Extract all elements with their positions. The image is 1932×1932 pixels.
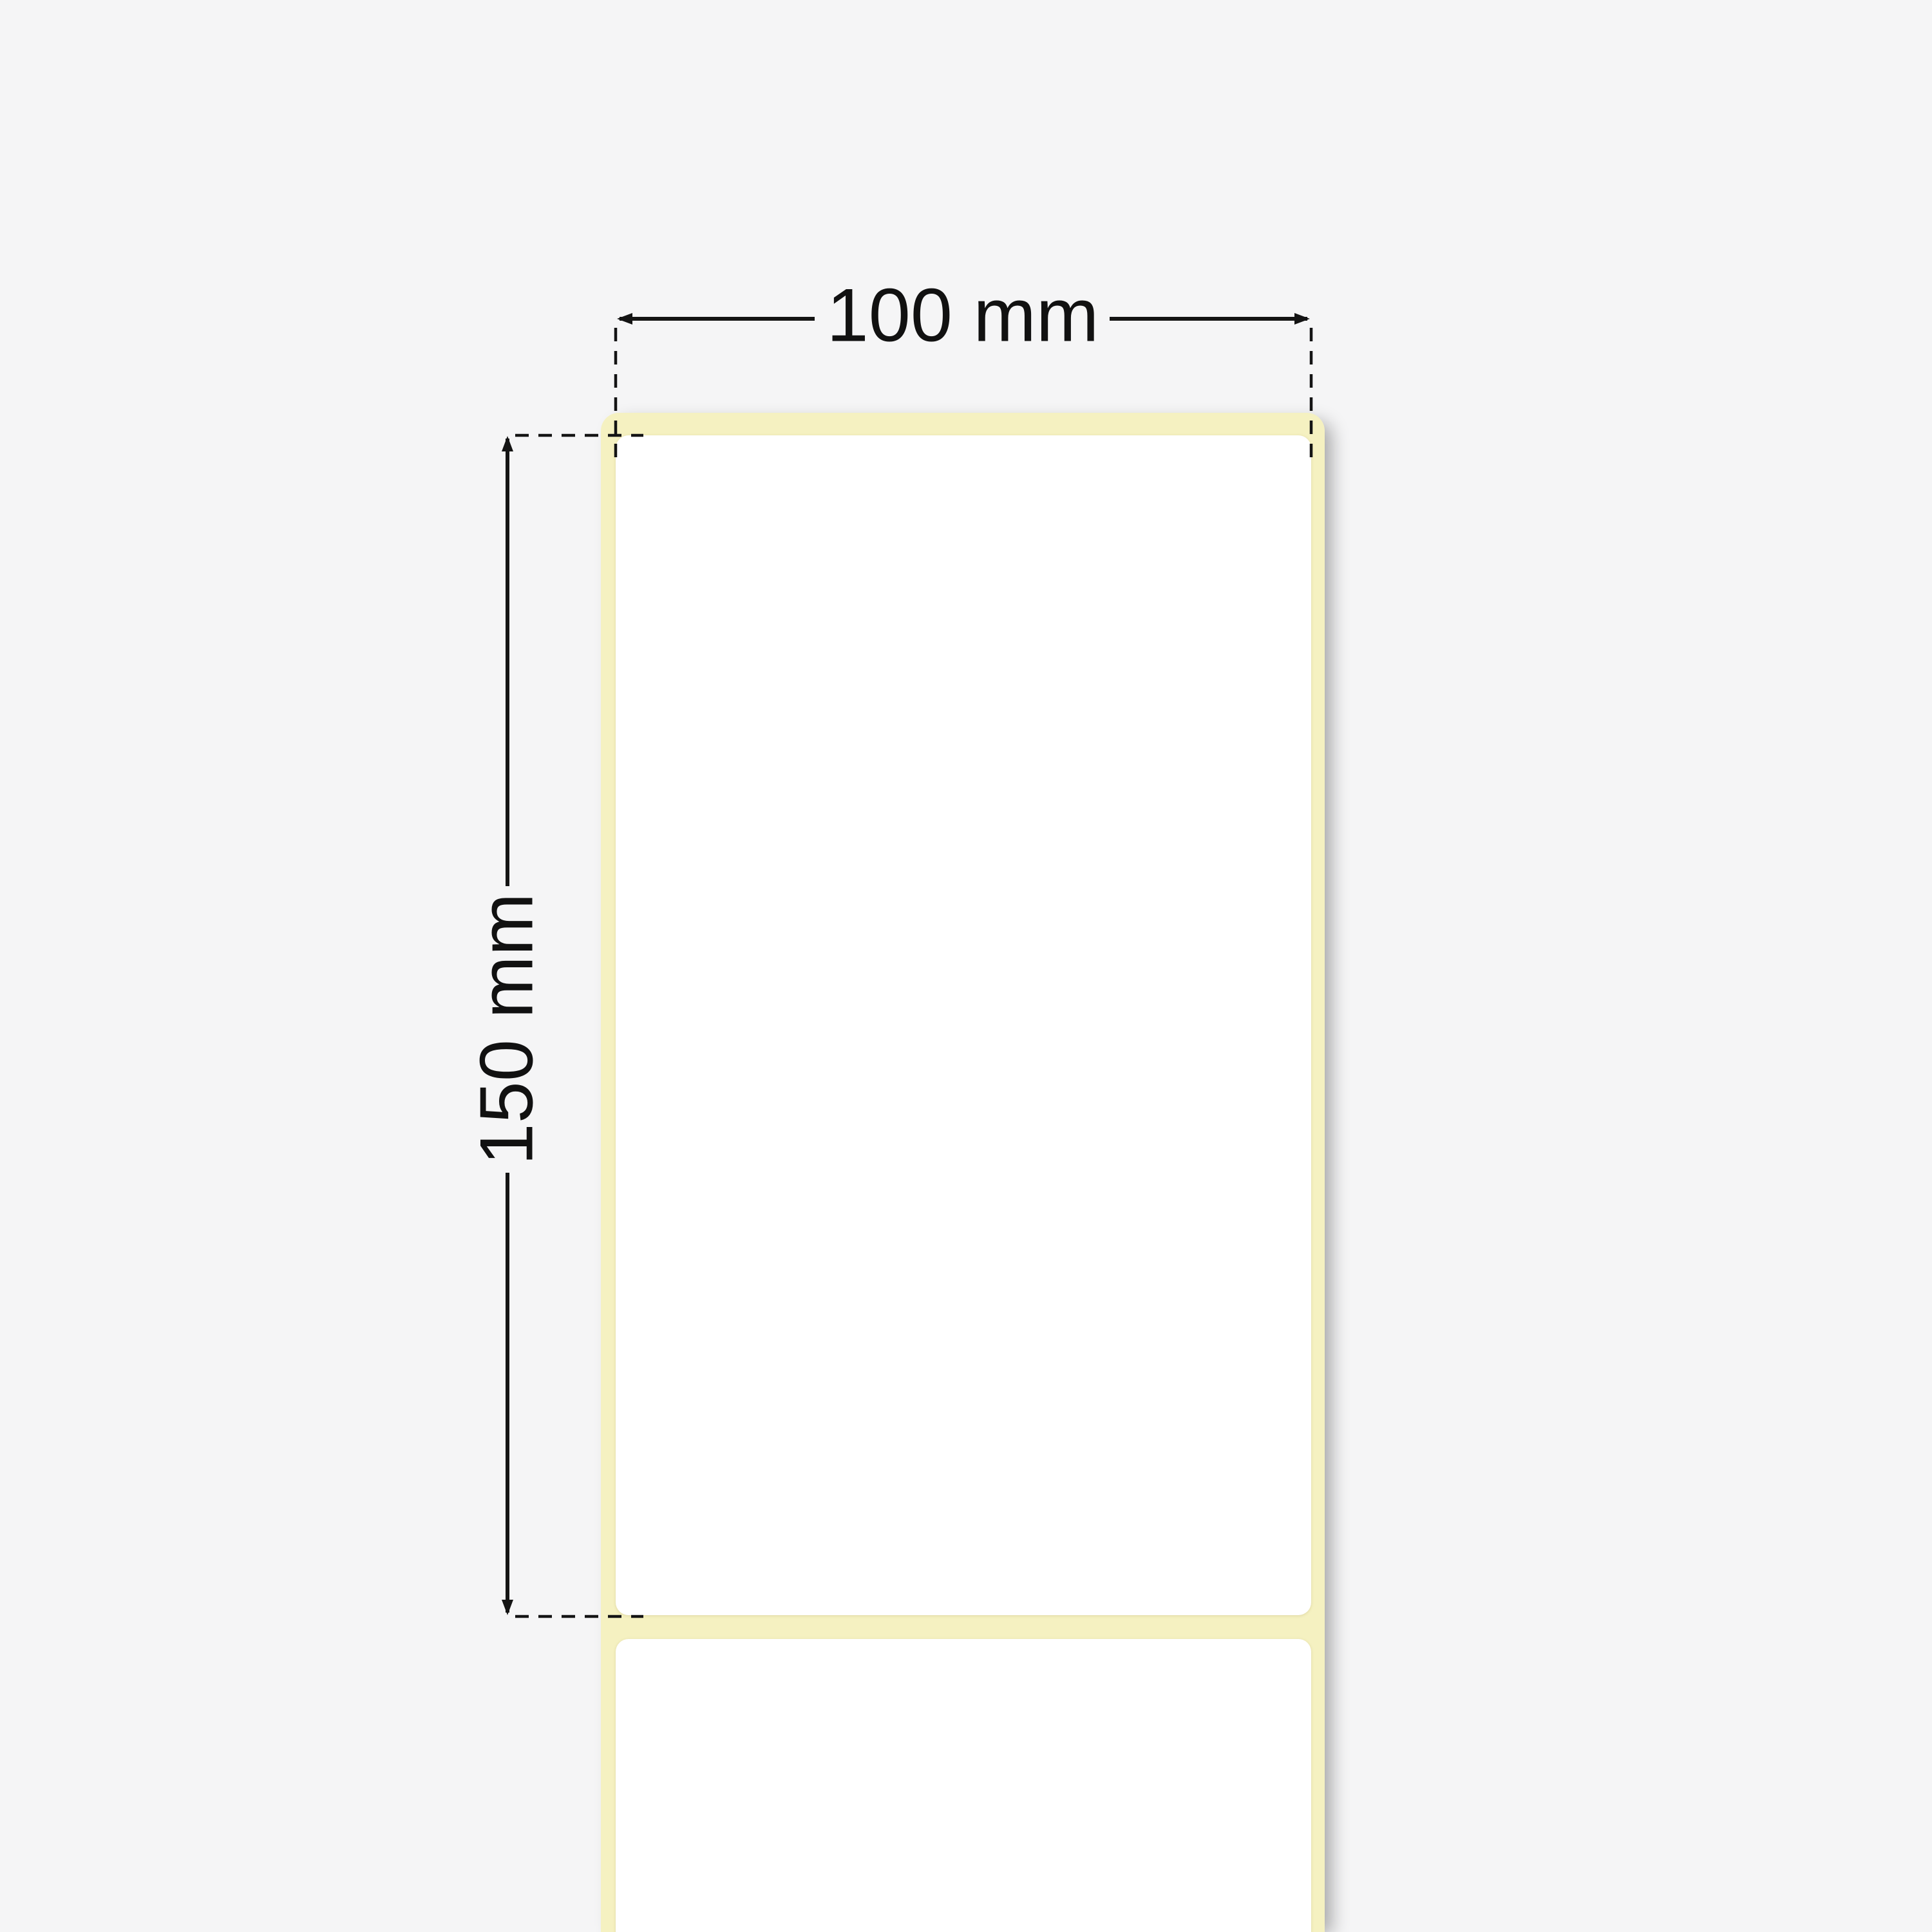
height-arrowhead-top	[502, 436, 513, 451]
blank-label-top	[616, 435, 1311, 1615]
width-dimension-label: 100 mm	[827, 278, 1099, 353]
width-arrowhead-right	[1294, 313, 1310, 325]
height-dimension-label: 150 mm	[469, 893, 544, 1166]
blank-label-bottom	[616, 1639, 1311, 1932]
width-arrowhead-left	[617, 313, 632, 325]
height-arrowhead-bottom	[502, 1600, 513, 1615]
product-diagram: 100 mm 150 mm	[0, 0, 1932, 1932]
